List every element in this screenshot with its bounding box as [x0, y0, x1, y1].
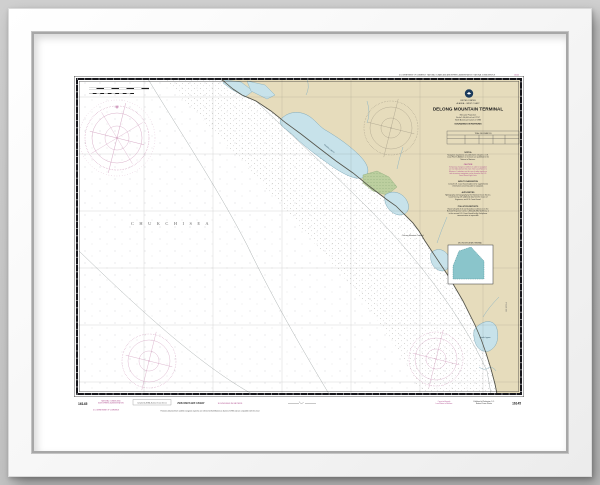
datum-compatibility-line: Positions obtained from satellite naviga… — [160, 410, 260, 413]
framed-chart-print[interactable]: DELONG MOUNTAIN TERMINAL UNITED STATES A… — [0, 0, 600, 485]
tidal-table-title: TIDAL INFORMATION — [475, 132, 493, 135]
lagoon-south-label: Ipiavik Lagoon — [479, 337, 490, 339]
terminal-inset: DELONG MOUNTAIN TERMINAL — [448, 242, 493, 285]
sea-name-label: C H U K C H I S E A — [131, 221, 211, 226]
region-label: ALASKA – WEST COAST — [456, 102, 480, 105]
chart-number-right: 16145 — [512, 402, 521, 406]
top-chart-number: 16145 — [514, 75, 519, 77]
picture-frame: DELONG MOUNTAIN TERMINAL UNITED STATES A… — [8, 8, 592, 477]
datum-label: North American Datum of 1983 — [455, 119, 481, 122]
soundings-meters-label: SOUNDINGS IN METERS — [218, 403, 243, 405]
mat-board: DELONG MOUNTAIN TERMINAL UNITED STATES A… — [34, 34, 566, 451]
country-label: UNITED STATES — [460, 99, 476, 102]
note-lines: Consult U.S. Coast Guard Light List for … — [448, 182, 488, 187]
chart-number-left: 16145 — [78, 402, 88, 406]
nautical-chart: DELONG MOUNTAIN TERMINAL UNITED STATES A… — [67, 67, 527, 421]
terminal-label: DeLong Mountain Terminal — [402, 234, 424, 237]
chart-title: DELONG MOUNTAIN TERMINAL — [433, 107, 504, 112]
soundings-label: SOUNDINGS IN FATHOMS — [454, 123, 482, 126]
preliminary-chart-label: PRELIMINARY CHART — [177, 402, 205, 405]
